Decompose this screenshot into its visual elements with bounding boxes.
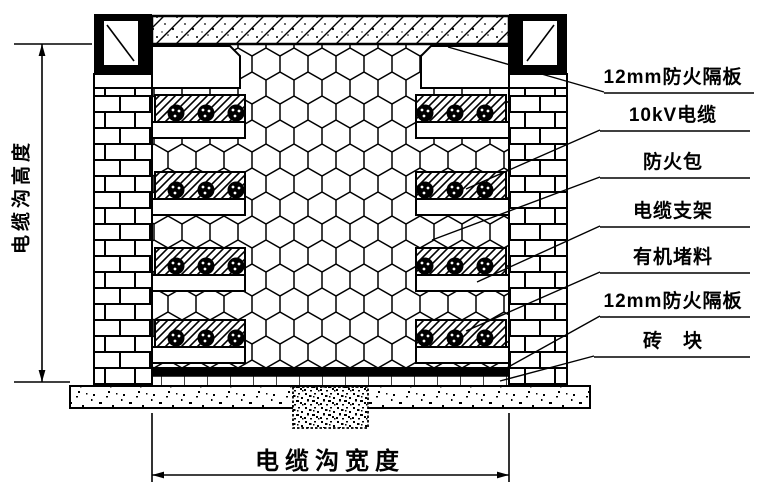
cable-trench-diagram: 12mm防火隔板 10kV电缆 防火包 电缆支架 有机堵料 12mm防火隔板 砖… — [0, 0, 760, 495]
width-dimension-label: 电缆沟宽度 — [230, 441, 430, 476]
cable-group — [417, 258, 494, 275]
top-cover-slab — [152, 16, 509, 44]
callout-underlines — [594, 93, 754, 357]
left-corner-angle-steel — [94, 14, 152, 88]
cable-group — [417, 105, 494, 122]
cable-group — [417, 182, 494, 199]
cable-group — [417, 330, 494, 347]
callout-label-cable-bracket: 电缆支架 — [592, 200, 754, 224]
callout-label-fire-barrier-board-top: 12mm防火隔板 — [592, 66, 754, 90]
callout-label-fire-barrier-board-bottom: 12mm防火隔板 — [592, 290, 754, 314]
right-brick-wall — [509, 88, 567, 386]
cover-seat-left — [152, 46, 240, 88]
left-brick-wall — [94, 88, 152, 386]
callout-label-fireproof-bag: 防火包 — [592, 151, 754, 175]
bottom-fire-barrier-board — [152, 368, 509, 376]
callout-label-cable-10kv: 10kV电缆 — [592, 104, 754, 128]
callout-label-brick-block: 砖 块 — [592, 330, 754, 354]
cable-group — [168, 330, 245, 347]
right-corner-angle-steel — [509, 14, 567, 88]
drain-sump — [293, 387, 368, 428]
callout-label-organic-sealant: 有机堵料 — [592, 246, 754, 270]
cable-group — [168, 182, 245, 199]
cable-group — [168, 258, 245, 275]
cable-group — [168, 105, 245, 122]
height-dimension-label: 电缆沟高度 — [7, 112, 34, 282]
